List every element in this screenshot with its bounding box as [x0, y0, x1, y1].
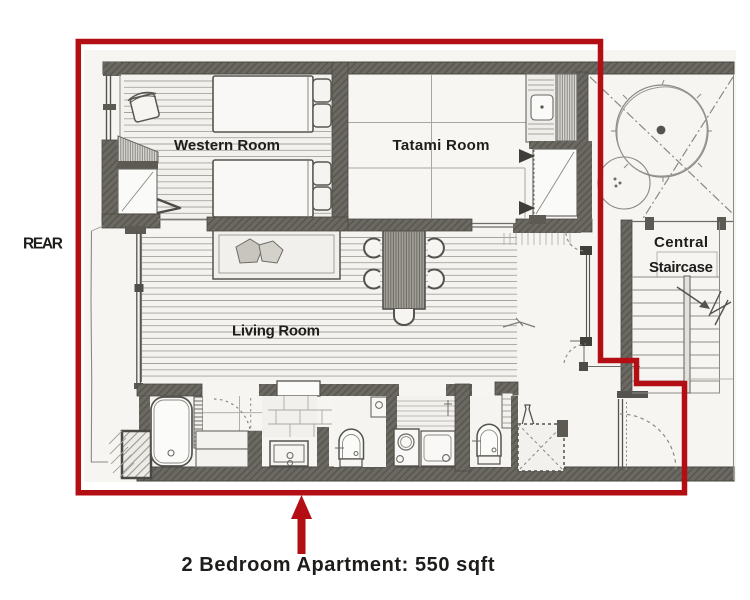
svg-text:Staircase: Staircase	[649, 259, 713, 276]
svg-text:Western Room: Western Room	[174, 137, 280, 154]
svg-text:2 Bedroom Apartment: 550 sqft: 2 Bedroom Apartment: 550 sqft	[182, 554, 495, 576]
svg-text:Living Room: Living Room	[232, 323, 320, 340]
svg-text:REAR: REAR	[23, 236, 63, 253]
svg-text:Tatami Room: Tatami Room	[393, 137, 490, 154]
svg-text:Central: Central	[654, 234, 708, 251]
